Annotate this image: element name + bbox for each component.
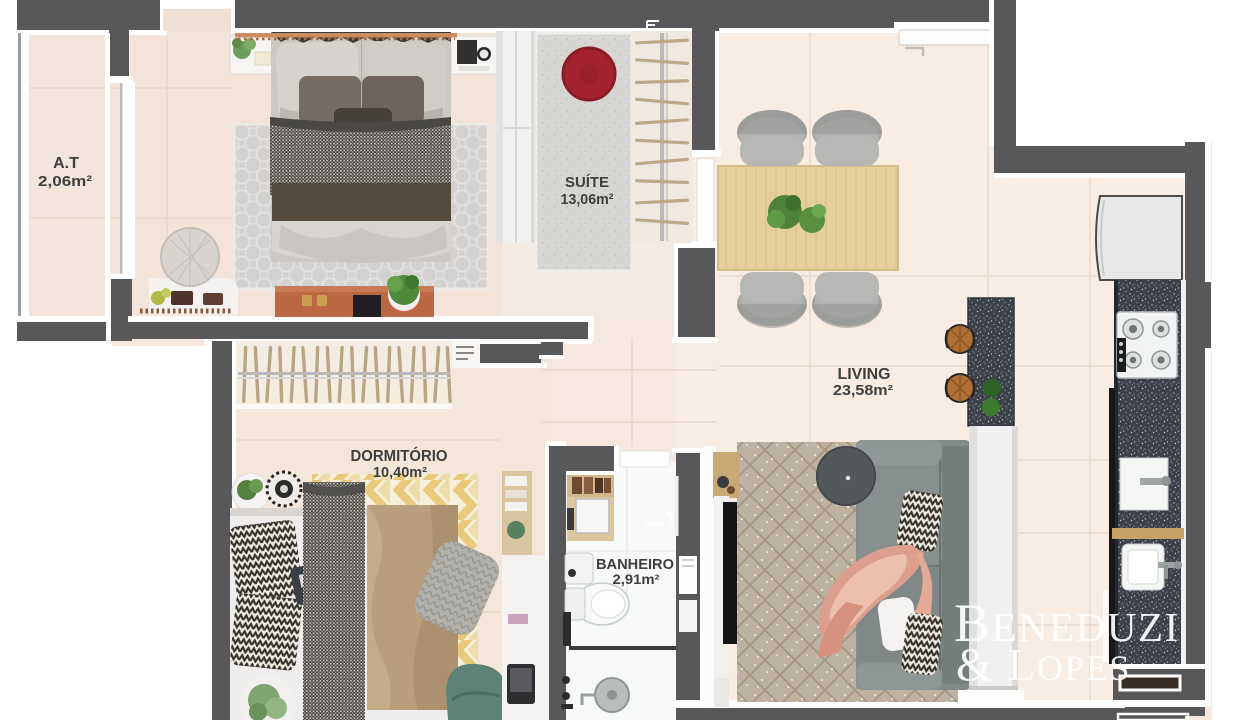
svg-text:LIVING: LIVING [838,366,891,383]
svg-text:SUÍTE: SUÍTE [565,174,609,191]
svg-text:DORMITÓRIO: DORMITÓRIO [351,446,448,465]
svg-text:13,06m²: 13,06m² [561,191,614,208]
svg-text:23,58m²: 23,58m² [833,383,893,399]
svg-text:A.T: A.T [53,155,79,172]
svg-text:2,06m²: 2,06m² [38,173,92,190]
svg-text:2,91m²: 2,91m² [613,571,660,587]
svg-text:10,40m²: 10,40m² [373,465,427,481]
